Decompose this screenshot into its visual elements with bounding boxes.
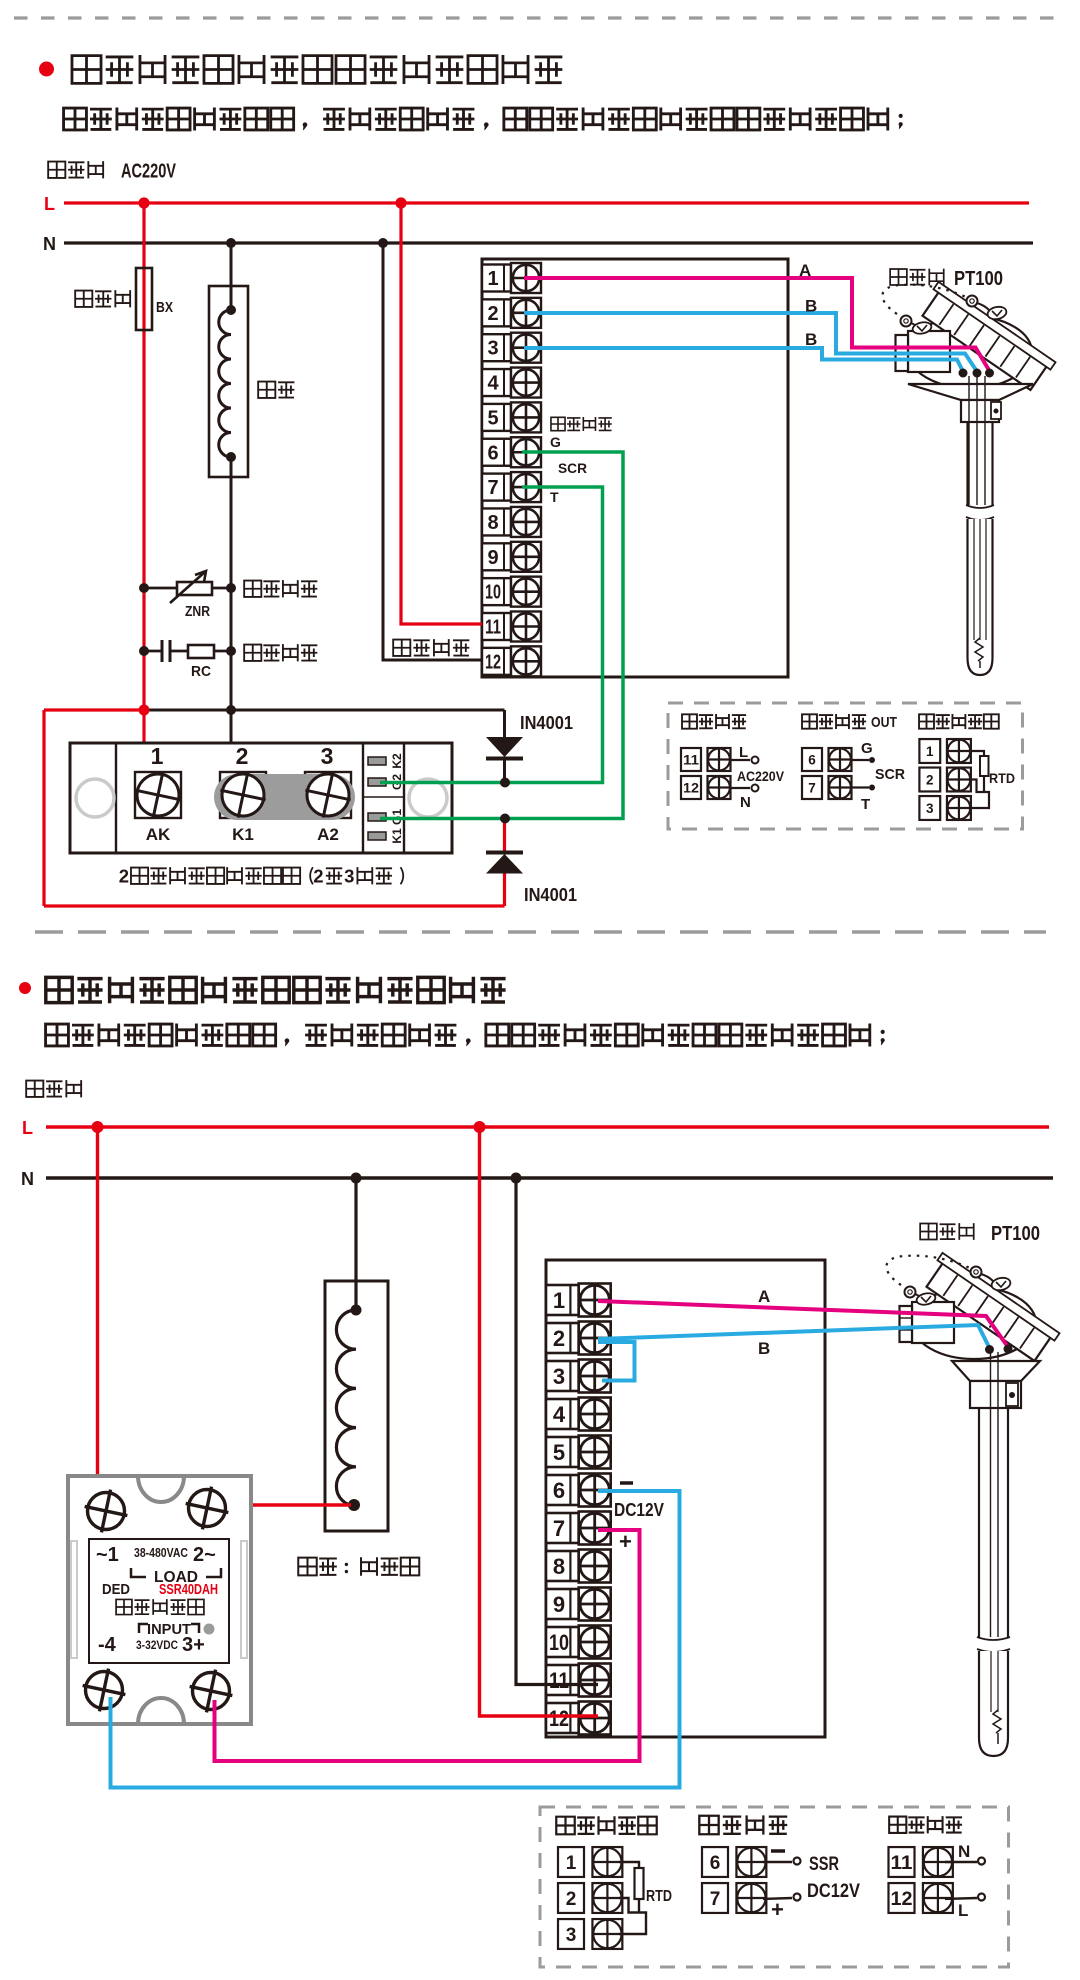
svg-text:7: 7 <box>553 1516 565 1541</box>
svg-text:3: 3 <box>487 338 498 360</box>
svg-text:6: 6 <box>808 752 816 767</box>
svg-text:7: 7 <box>808 780 816 795</box>
svg-text:2: 2 <box>566 1889 577 1910</box>
svg-text:6: 6 <box>710 1853 721 1874</box>
svg-text:K2: K2 <box>390 753 404 769</box>
svg-text:1: 1 <box>926 744 934 759</box>
svg-text:5: 5 <box>553 1440 565 1465</box>
svg-text:AK: AK <box>146 825 171 844</box>
svg-text:1: 1 <box>487 268 498 290</box>
svg-text:2: 2 <box>553 1326 565 1351</box>
svg-text:11: 11 <box>485 617 501 639</box>
svg-text:IN4001: IN4001 <box>520 713 573 733</box>
svg-text:B: B <box>805 330 817 349</box>
svg-text:1: 1 <box>553 1288 565 1313</box>
svg-text:-4: -4 <box>98 1634 117 1656</box>
svg-text:7: 7 <box>710 1889 721 1910</box>
svg-text:1: 1 <box>151 743 164 769</box>
svg-text:9: 9 <box>487 547 498 569</box>
svg-text:L: L <box>958 1901 968 1920</box>
svg-text:T: T <box>550 489 559 505</box>
svg-text:DC12V: DC12V <box>807 1881 860 1902</box>
svg-text:PT100: PT100 <box>991 1223 1040 1245</box>
svg-text:RC: RC <box>191 663 211 680</box>
svg-text:B: B <box>758 1339 770 1358</box>
svg-text:6: 6 <box>553 1478 565 1503</box>
svg-text:5: 5 <box>487 407 498 429</box>
svg-text:3: 3 <box>566 1925 577 1946</box>
svg-text:12: 12 <box>683 780 699 795</box>
svg-text:10: 10 <box>549 1630 569 1655</box>
svg-text:4: 4 <box>487 373 499 395</box>
svg-text:11: 11 <box>891 1853 913 1874</box>
svg-text:SCR: SCR <box>558 460 587 476</box>
svg-text:2: 2 <box>313 866 323 887</box>
svg-text:8: 8 <box>487 512 498 534</box>
svg-text:BX: BX <box>156 299 173 316</box>
svg-text:4: 4 <box>553 1402 566 1427</box>
svg-text:OUT: OUT <box>871 714 897 731</box>
svg-text:11: 11 <box>683 752 700 767</box>
svg-text:SSR40DAH: SSR40DAH <box>159 1581 218 1598</box>
svg-text:A: A <box>799 261 811 280</box>
svg-text:9: 9 <box>553 1592 565 1617</box>
svg-text:RTD: RTD <box>646 1888 672 1905</box>
svg-text:IN4001: IN4001 <box>524 885 577 905</box>
svg-text:AC220V: AC220V <box>121 161 176 183</box>
svg-text:3-32VDC: 3-32VDC <box>136 1638 178 1652</box>
svg-text:A: A <box>758 1287 770 1306</box>
svg-text:+: + <box>619 1529 632 1554</box>
svg-text:G: G <box>550 434 561 450</box>
svg-text:SCR: SCR <box>875 766 905 783</box>
svg-text:DC12V: DC12V <box>614 1500 664 1520</box>
svg-text:7: 7 <box>487 477 498 499</box>
svg-text:6: 6 <box>487 442 498 464</box>
svg-text:K1: K1 <box>390 828 404 844</box>
svg-text:3: 3 <box>321 743 334 769</box>
svg-text:N: N <box>958 1842 970 1861</box>
svg-text:G: G <box>861 740 873 757</box>
svg-text:12: 12 <box>549 1706 569 1731</box>
svg-text:2~: 2~ <box>193 1544 216 1566</box>
svg-text:12: 12 <box>485 651 501 673</box>
svg-text:2: 2 <box>487 303 498 325</box>
svg-text:3: 3 <box>926 801 934 816</box>
svg-text:2: 2 <box>236 743 249 769</box>
svg-text:B: B <box>805 297 817 316</box>
svg-text:PT100: PT100 <box>954 268 1003 290</box>
svg-text:3+: 3+ <box>182 1634 205 1656</box>
svg-text:K1: K1 <box>232 825 254 844</box>
svg-text:3: 3 <box>553 1364 565 1389</box>
svg-text:38-480VAC: 38-480VAC <box>134 1545 188 1560</box>
svg-text:L: L <box>739 744 748 761</box>
svg-text:10: 10 <box>485 582 501 604</box>
svg-text:11: 11 <box>549 1668 569 1693</box>
svg-text:+: + <box>771 1897 784 1922</box>
svg-text:L: L <box>44 194 55 214</box>
svg-text:1: 1 <box>566 1853 577 1874</box>
svg-text:AC220V: AC220V <box>737 768 785 784</box>
svg-text:2: 2 <box>926 772 934 787</box>
svg-text:SSR: SSR <box>809 1854 839 1875</box>
svg-text:DED: DED <box>102 1581 130 1598</box>
svg-text:RTD: RTD <box>989 770 1015 786</box>
svg-text:8: 8 <box>553 1554 565 1579</box>
svg-text:12: 12 <box>891 1889 913 1910</box>
svg-text:~1: ~1 <box>96 1544 119 1566</box>
svg-text:N: N <box>740 794 751 811</box>
svg-text:L: L <box>22 1118 33 1138</box>
svg-text:ZNR: ZNR <box>185 603 210 620</box>
svg-text:3: 3 <box>344 866 354 887</box>
svg-text:N: N <box>21 1169 34 1189</box>
svg-text:T: T <box>861 796 870 813</box>
svg-text:N: N <box>43 234 56 254</box>
svg-text:A2: A2 <box>317 825 339 844</box>
svg-text:2: 2 <box>119 866 129 887</box>
